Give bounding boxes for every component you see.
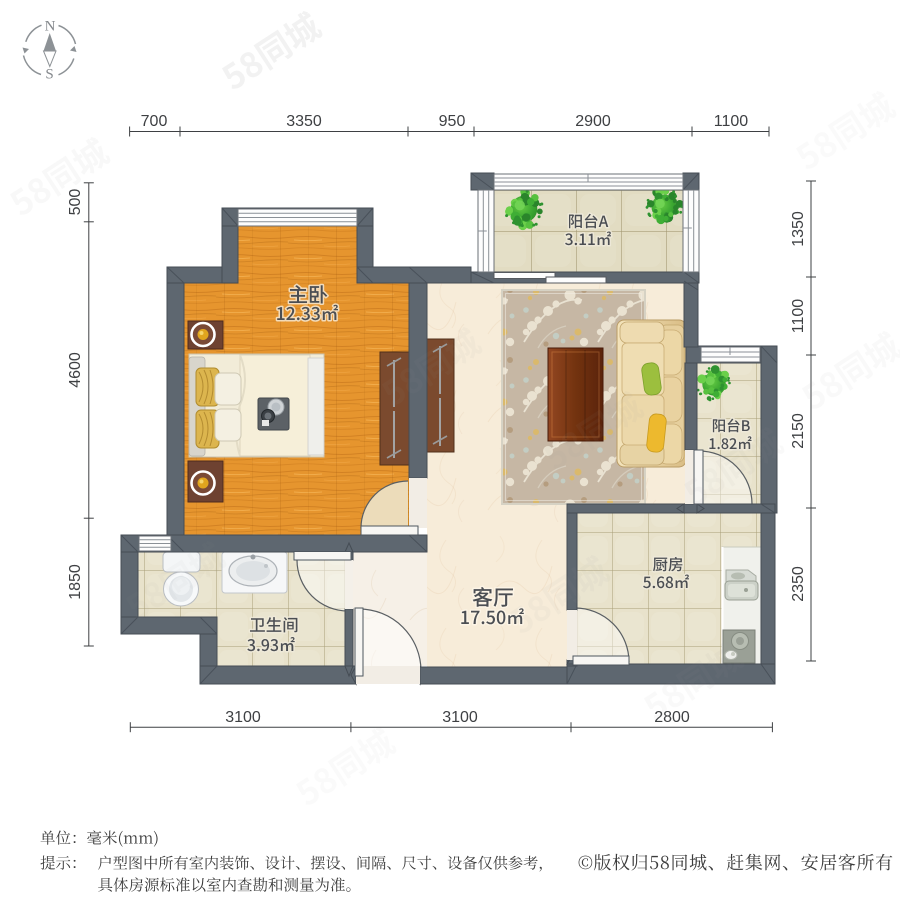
svg-text:1100: 1100 <box>790 299 807 334</box>
svg-text:N: N <box>45 19 56 35</box>
svg-text:2900: 2900 <box>575 113 611 130</box>
svg-text:3350: 3350 <box>286 113 322 130</box>
svg-text:1100: 1100 <box>714 113 749 130</box>
svg-text:4600: 4600 <box>67 352 84 388</box>
svg-text:3100: 3100 <box>442 709 478 726</box>
svg-text:1350: 1350 <box>790 211 807 247</box>
svg-text:500: 500 <box>67 189 84 216</box>
svg-text:700: 700 <box>141 113 168 130</box>
svg-text:950: 950 <box>439 113 466 130</box>
svg-text:3100: 3100 <box>225 709 261 726</box>
svg-text:1850: 1850 <box>67 564 84 600</box>
svg-text:2150: 2150 <box>790 413 807 449</box>
svg-text:S: S <box>45 67 53 83</box>
svg-text:2350: 2350 <box>790 566 807 602</box>
